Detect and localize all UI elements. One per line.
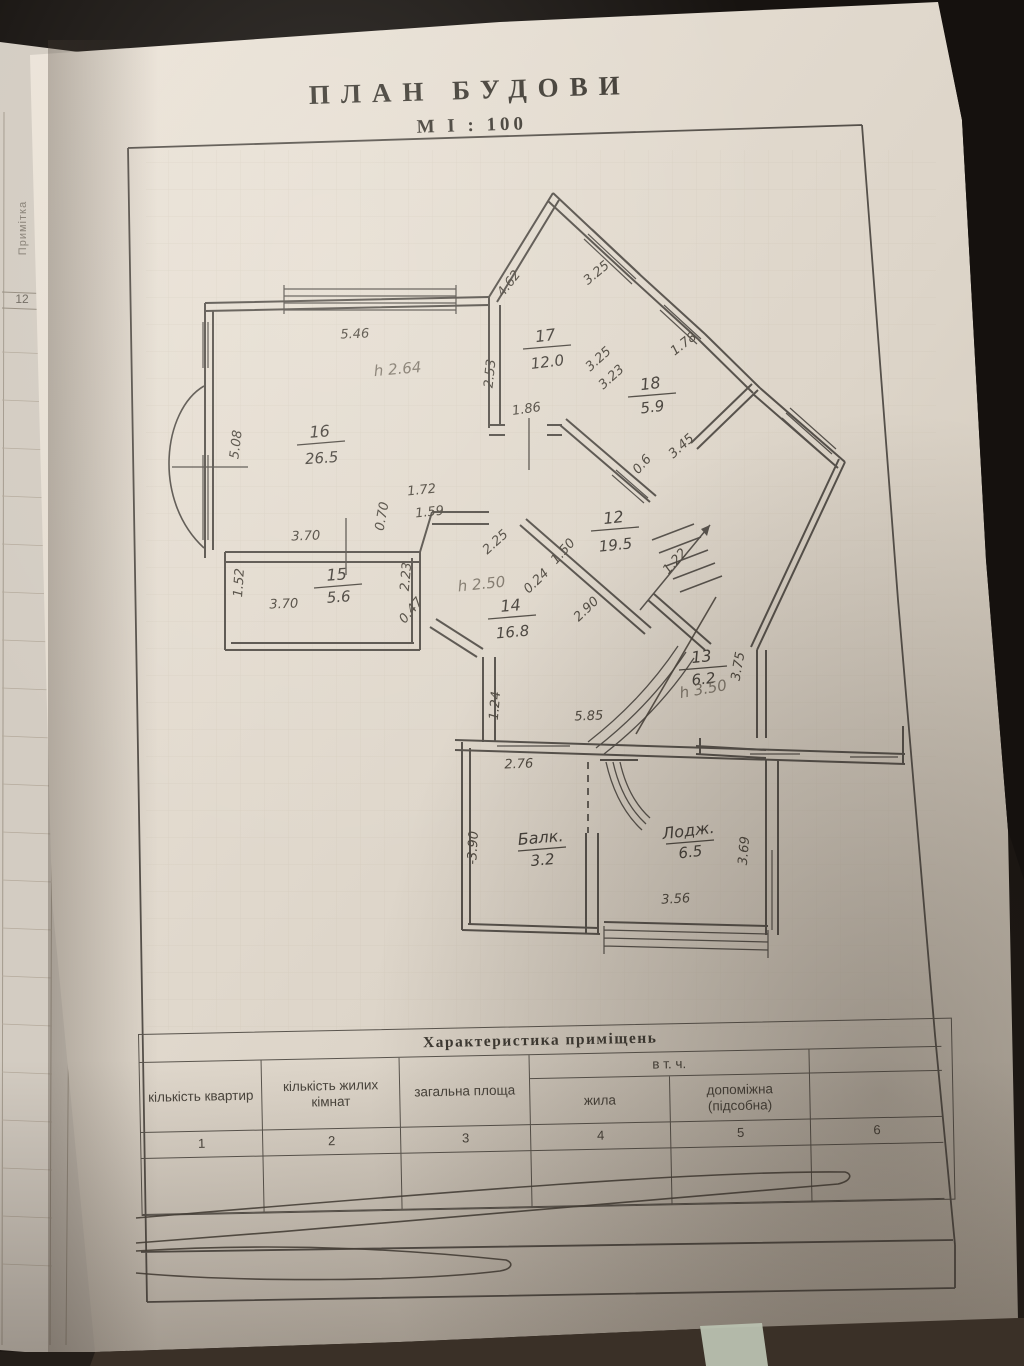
room-area: 3.2 (530, 850, 555, 870)
table-cell-empty (142, 1157, 265, 1215)
characteristics-table: Характеристика приміщень кількість кварт… (138, 1018, 955, 1216)
dim-label: 3.69 (736, 836, 753, 866)
graph-paper-grid (146, 150, 936, 1030)
room-number: 16 (309, 421, 331, 441)
dim-label: 1.72 (406, 482, 436, 500)
table-header-auxiliary: допоміжна (підсобна) (670, 1074, 811, 1123)
room-area: 19.5 (598, 534, 633, 555)
dim-label: 2.53 (482, 358, 500, 388)
table-cell-empty (401, 1151, 532, 1210)
dim-label: 2.76 (504, 757, 533, 773)
table-colnum-6: 6 (811, 1117, 943, 1146)
room-area: 16.8 (495, 622, 530, 643)
table-colnum-2: 2 (263, 1128, 401, 1157)
dim-label: 1.59 (414, 504, 444, 522)
room-number: 18 (639, 373, 662, 394)
dim-label: 3.56 (661, 891, 691, 907)
table-header-col6-top (809, 1047, 941, 1074)
room-number: 12 (602, 507, 624, 528)
dim-label: 3.70 (269, 597, 298, 613)
dim-label: 2.23 (398, 562, 415, 592)
room-area: 5.9 (639, 397, 665, 418)
photographed-document: Примітка 12 перевір. запис і площ. (кв.м… (0, 0, 1024, 1366)
room-number: 14 (500, 595, 522, 616)
table-colnum-1: 1 (141, 1131, 263, 1159)
margin-row-number: 12 (15, 292, 29, 306)
margin-column-label: Примітка (17, 201, 29, 255)
table-colnum-5: 5 (671, 1120, 811, 1149)
room-number: 15 (326, 564, 348, 584)
table-cell-empty (811, 1143, 944, 1202)
room-area: 5.6 (326, 587, 351, 607)
table-header-total-area: загальна площа (400, 1055, 531, 1128)
dim-label: 1.24 (487, 691, 504, 721)
table-header-col6 (810, 1071, 943, 1120)
document-scale: М І : 100 (416, 113, 527, 137)
dim-label: -3.90 (465, 831, 482, 865)
table-header-living: жила (530, 1076, 671, 1125)
room-number: Балк. (517, 826, 564, 849)
room-number: 13 (690, 646, 712, 667)
dim-label: 1.52 (231, 568, 248, 598)
table-header-apartments: кількість квартир (140, 1061, 263, 1133)
dim-label: 5.85 (574, 709, 603, 725)
table-cell-empty (263, 1154, 402, 1213)
table-cell-empty (531, 1148, 672, 1207)
dim-label: 5.46 (340, 327, 369, 343)
table-colnum-3: 3 (401, 1125, 531, 1154)
room-number: 17 (534, 325, 557, 346)
table-header-living-rooms: кількість жилих кімнат (262, 1058, 401, 1131)
table-cell-empty (671, 1146, 812, 1205)
table-colnum-4: 4 (531, 1122, 671, 1151)
room-area: 26.5 (304, 448, 339, 468)
room-area: 6.5 (677, 842, 703, 863)
dim-label: 3.70 (291, 529, 320, 545)
